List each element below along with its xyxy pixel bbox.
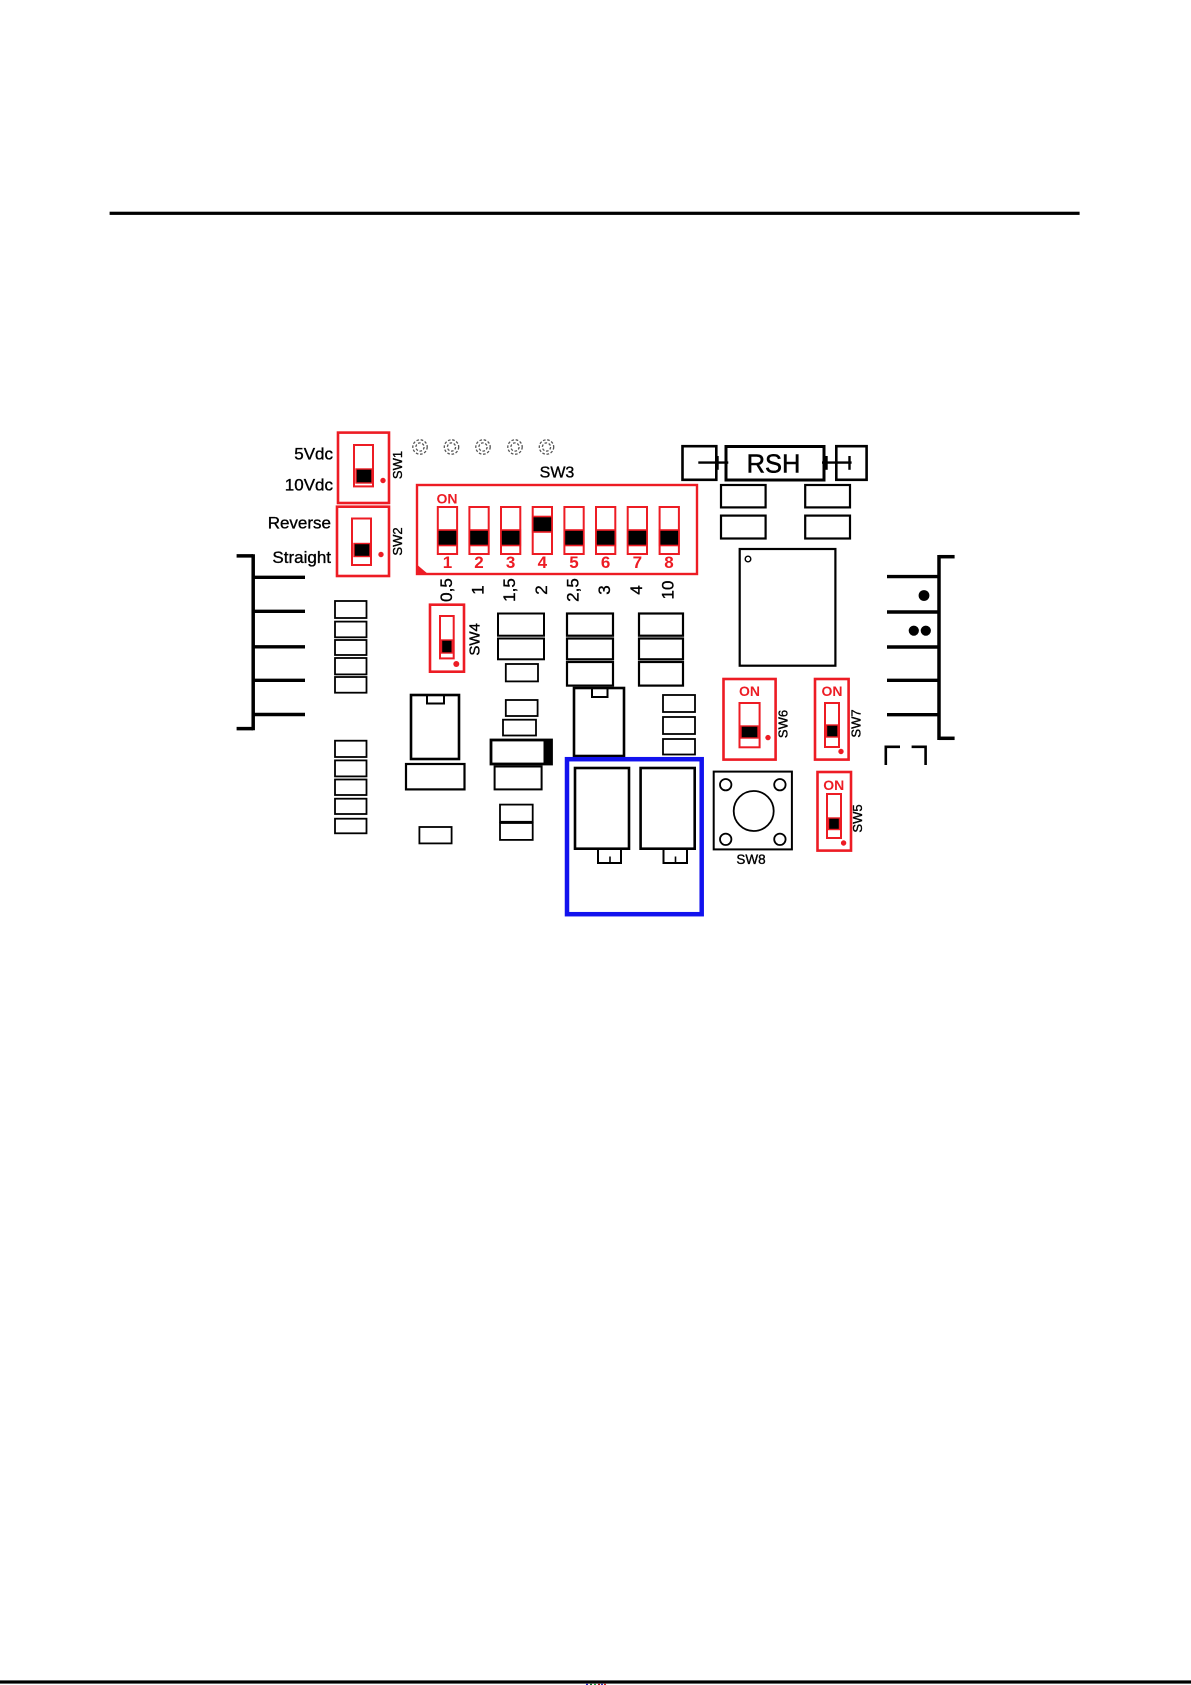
svg-text:6: 6 (601, 553, 610, 572)
svg-text:7: 7 (633, 553, 642, 572)
svg-text:5: 5 (569, 553, 578, 572)
svg-text:SW7: SW7 (849, 709, 864, 737)
svg-text:8: 8 (664, 553, 673, 572)
svg-text:4: 4 (627, 585, 646, 594)
svg-text:ON: ON (437, 491, 458, 507)
svg-text:SW6: SW6 (776, 710, 791, 738)
svg-text:10Vdc: 10Vdc (285, 476, 334, 495)
svg-text:0,5: 0,5 (437, 578, 456, 602)
svg-text:ON: ON (823, 777, 844, 793)
svg-text:1: 1 (443, 553, 452, 572)
svg-text:SW3: SW3 (540, 465, 575, 482)
svg-text:2,5: 2,5 (564, 578, 583, 602)
svg-text:10: 10 (659, 581, 678, 600)
svg-text:RSH: RSH (747, 451, 801, 479)
svg-text:SW1: SW1 (390, 451, 405, 479)
svg-text:3: 3 (595, 585, 614, 594)
svg-text:SW4: SW4 (467, 623, 484, 656)
svg-text:SW5: SW5 (850, 804, 865, 832)
svg-text:4: 4 (538, 553, 548, 572)
svg-text:1: 1 (469, 585, 488, 594)
svg-text:ON: ON (822, 683, 843, 699)
svg-text:SW2: SW2 (390, 527, 405, 555)
svg-text:2: 2 (532, 585, 551, 594)
svg-text:3: 3 (506, 553, 515, 572)
svg-text:SW8: SW8 (736, 852, 765, 867)
svg-text:Reverse: Reverse (268, 514, 331, 533)
svg-text:Straight: Straight (272, 548, 331, 567)
svg-text:5Vdc: 5Vdc (294, 445, 333, 464)
svg-text:ON: ON (739, 683, 760, 699)
svg-text:2: 2 (474, 553, 483, 572)
svg-text:1,5: 1,5 (500, 578, 519, 602)
